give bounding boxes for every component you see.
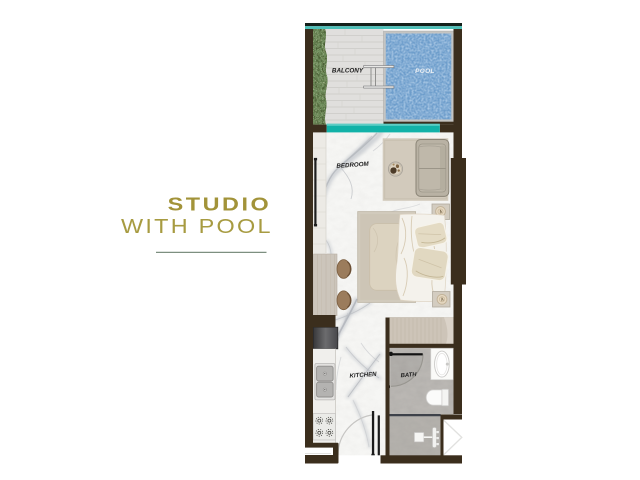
svg-text:WITH POOL: WITH POOL bbox=[121, 215, 273, 238]
svg-text:STUDIO: STUDIO bbox=[168, 194, 272, 215]
svg-text:BALCONY: BALCONY bbox=[332, 68, 364, 75]
svg-text:BATH: BATH bbox=[400, 372, 417, 379]
svg-text:POOL: POOL bbox=[415, 68, 435, 75]
